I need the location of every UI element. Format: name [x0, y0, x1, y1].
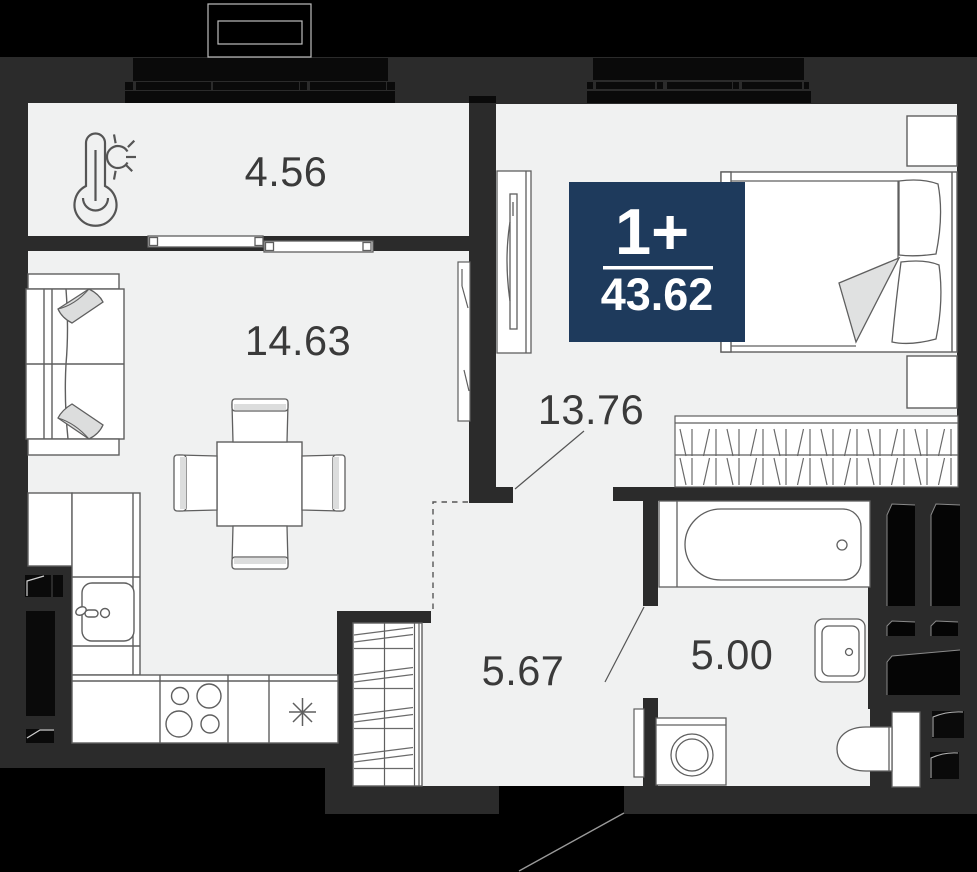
- svg-text:4.56: 4.56: [245, 148, 328, 195]
- svg-text:14.63: 14.63: [245, 317, 351, 364]
- svg-text:43.62: 43.62: [601, 269, 714, 320]
- svg-text:1+: 1+: [615, 195, 689, 268]
- svg-text:5.00: 5.00: [691, 631, 774, 678]
- svg-text:13.76: 13.76: [538, 386, 644, 433]
- svg-text:5.67: 5.67: [482, 647, 565, 694]
